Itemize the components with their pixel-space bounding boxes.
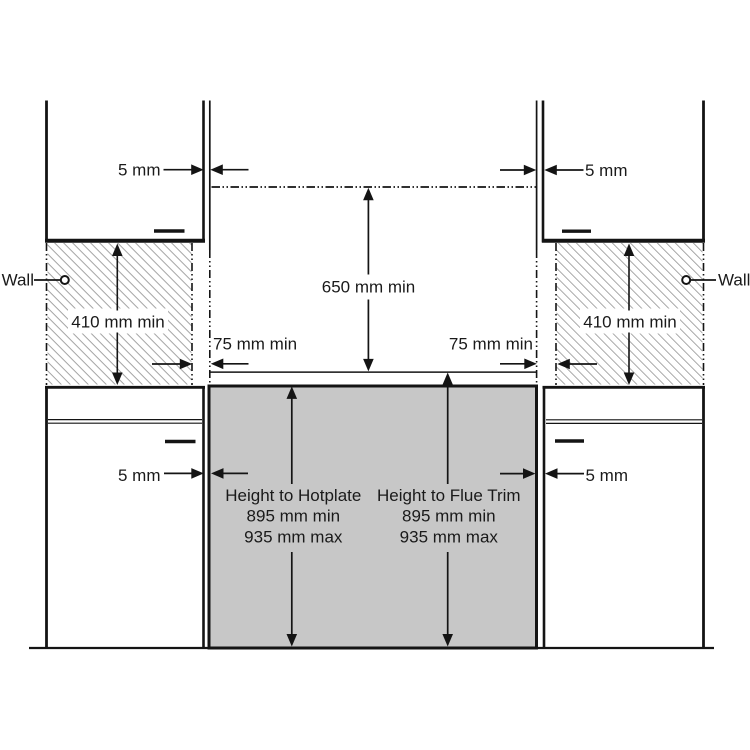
svg-text:Height to Hotplate: Height to Hotplate (225, 486, 361, 505)
svg-text:895 mm min: 895 mm min (247, 507, 341, 526)
svg-text:410 mm min: 410 mm min (71, 313, 165, 332)
svg-text:Height to Flue Trim: Height to Flue Trim (377, 486, 521, 505)
svg-text:650 mm min: 650 mm min (322, 278, 416, 297)
svg-text:895 mm min: 895 mm min (402, 507, 496, 526)
svg-text:75 mm min: 75 mm min (213, 335, 297, 354)
svg-text:75 mm min: 75 mm min (449, 335, 533, 354)
svg-text:935 mm max: 935 mm max (244, 527, 343, 546)
svg-text:Wall: Wall (718, 271, 750, 290)
svg-text:5 mm: 5 mm (585, 161, 628, 180)
svg-text:410 mm min: 410 mm min (583, 313, 677, 332)
svg-text:Wall: Wall (2, 271, 34, 290)
svg-text:5 mm: 5 mm (118, 161, 161, 180)
svg-text:5 mm: 5 mm (118, 466, 161, 485)
svg-text:935 mm max: 935 mm max (400, 527, 499, 546)
svg-text:5 mm: 5 mm (586, 466, 629, 485)
